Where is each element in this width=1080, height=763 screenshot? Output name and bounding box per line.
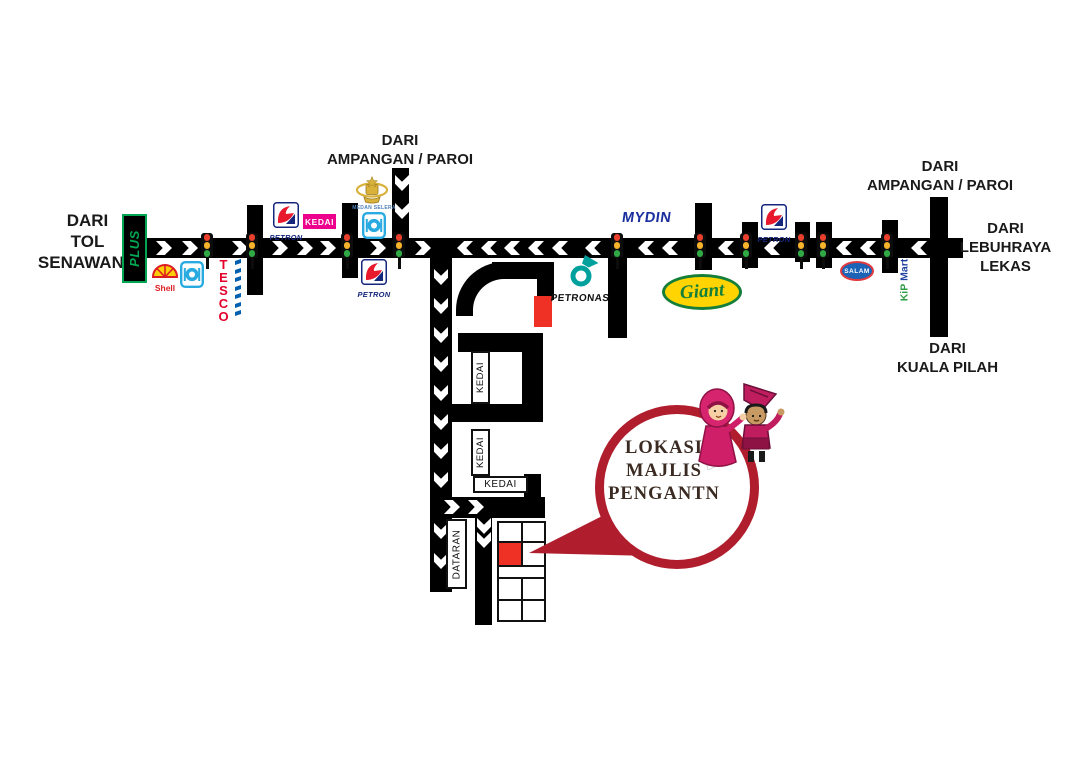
petronas-label: PETRONAS — [547, 293, 612, 304]
petron-station-2: PETRON — [357, 259, 391, 299]
petronas-station: PETRONAS — [548, 255, 612, 304]
shop-lot-grid — [497, 521, 546, 622]
tesco-dashes — [235, 260, 241, 315]
traffic-light-icon — [740, 233, 752, 258]
petron-icon — [361, 259, 387, 285]
traffic-light-icon — [817, 233, 829, 258]
plus-highway-sign: PLUS — [122, 214, 147, 283]
salam-sign: SALAM — [840, 261, 874, 281]
shell-label: Shell — [149, 283, 181, 293]
traffic-light-icon — [393, 233, 405, 258]
lot-row — [499, 601, 544, 620]
lot-cell — [499, 567, 544, 577]
kedai-label: KEDAI — [475, 437, 486, 468]
lot-row — [499, 567, 544, 579]
plus-logo: PLUS — [127, 230, 142, 267]
tesco-label: TESCO — [216, 257, 230, 322]
label-dari-ampangan-paroi-top: DARI AMPANGAN / PAROI — [325, 131, 475, 169]
label-line: DARI — [325, 131, 475, 150]
kedai-label: KEDAI — [475, 362, 486, 393]
lot-cell — [523, 601, 545, 620]
petronas-icon — [569, 255, 599, 287]
label-line: LEKAS — [958, 257, 1053, 276]
balloon-line: PENGANTN — [600, 483, 728, 506]
kip-mart-sign: KiP Mart — [890, 254, 918, 306]
label-line: KUALA PILAH — [890, 358, 1005, 377]
kip-mart-label: KiP Mart — [898, 259, 910, 302]
government-crest-icon — [356, 176, 388, 205]
traffic-light-icon — [694, 233, 706, 258]
label-dari-ampangan-paroi-right: DARI AMPANGAN / PAROI — [866, 157, 1014, 195]
giant-label: Giant — [679, 279, 725, 304]
medan-selera-label: MEDAN SELERA — [352, 205, 396, 211]
kedai-sign-magenta: KEDAI — [303, 214, 336, 229]
giant-store: Giant — [662, 274, 742, 310]
mydin-label: MYDIN — [621, 210, 672, 226]
wedding-couple-illustration — [684, 378, 790, 482]
food-court-icon — [362, 212, 386, 239]
kip-label: KiP — [898, 284, 910, 302]
mart-label: Mart — [898, 259, 910, 281]
lot-cell — [523, 543, 545, 565]
kedai-box-vertical-1: KEDAI — [471, 351, 490, 404]
lot-row — [499, 543, 544, 567]
tesco-store: TESCO — [216, 257, 230, 322]
traffic-light-icon — [201, 233, 213, 258]
label-line: DARI — [958, 219, 1053, 238]
petron-station-1: PETRON — [269, 202, 303, 242]
food-court-icon — [180, 261, 204, 288]
kedai-label: KEDAI — [305, 217, 334, 227]
east-road — [930, 197, 948, 337]
petron-icon — [273, 202, 299, 228]
salam-label: SALAM — [844, 268, 870, 275]
petron-label: PETRON — [269, 233, 303, 242]
petron-icon — [761, 204, 787, 230]
dataran-box: DATARAN — [446, 519, 467, 589]
traffic-light-icon — [611, 233, 623, 258]
label-dari-lebuhraya-lekas: DARI LEBUHRAYA LEKAS — [958, 219, 1053, 276]
petron-label: PETRON — [757, 235, 791, 244]
traffic-light-icon — [795, 233, 807, 258]
wedding-lot-cell — [499, 543, 523, 565]
lot-cell — [523, 523, 545, 541]
petron-station-3: PETRON — [757, 204, 791, 244]
label-line: DARI — [890, 339, 1005, 358]
lot-cell — [523, 579, 545, 599]
lot-row — [499, 523, 544, 543]
lot-cell — [499, 579, 523, 599]
kedai-box-horizontal: KEDAI — [473, 476, 528, 493]
kedai-box-vertical-2: KEDAI — [471, 429, 490, 476]
wedding-location-map: DARI TOL SENAWANG DARI AMPANGAN / PAROI … — [0, 0, 1080, 763]
traffic-light-icon — [341, 233, 353, 258]
shop-row-road-2 — [452, 404, 543, 422]
lot-cell — [499, 523, 523, 541]
petron-label: PETRON — [357, 290, 391, 299]
label-line: DARI — [866, 157, 1014, 176]
traffic-light-icon — [246, 233, 258, 258]
label-line: AMPANGAN / PAROI — [866, 176, 1014, 195]
dataran-label: DATARAN — [451, 529, 462, 579]
lot-cell — [499, 601, 523, 620]
lot-row — [499, 579, 544, 601]
label-line: LEBUHRAYA — [958, 238, 1053, 257]
label-dari-kuala-pilah: DARI KUALA PILAH — [890, 339, 1005, 377]
shell-icon — [151, 258, 179, 279]
kedai-label: KEDAI — [484, 479, 517, 490]
shell-station: Shell — [149, 258, 181, 293]
label-line: AMPANGAN / PAROI — [325, 150, 475, 169]
